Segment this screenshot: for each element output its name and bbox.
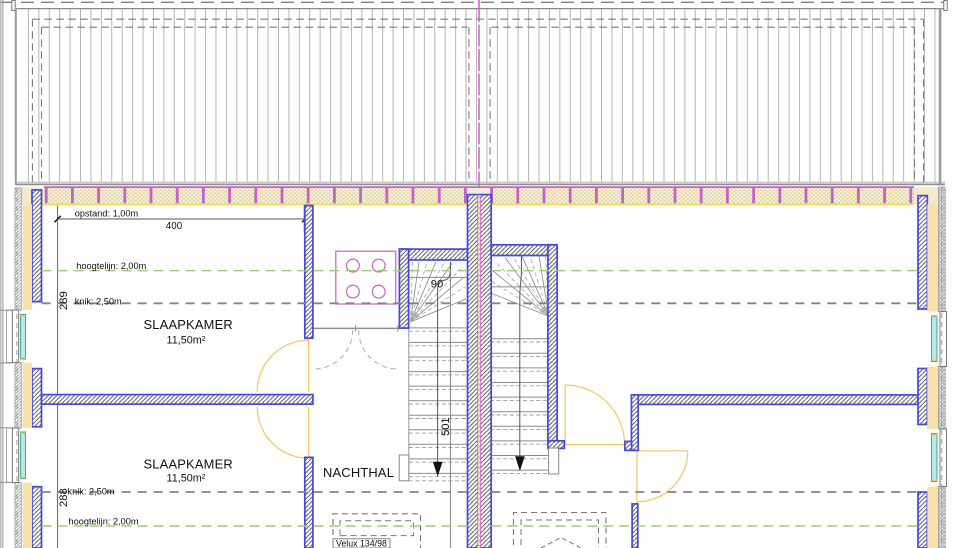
svg-text:hoogtelijn: 2,00m: hoogtelijn: 2,00m [76, 261, 146, 271]
svg-text:NACHTHAL: NACHTHAL [323, 465, 394, 480]
svg-text:288: 288 [58, 488, 70, 507]
svg-text:11,50m²: 11,50m² [167, 473, 206, 485]
svg-text:knik: 2,50m: knik: 2,50m [75, 297, 122, 307]
svg-text:knik: 2,50m: knik: 2,50m [68, 487, 115, 497]
svg-text:501: 501 [440, 417, 452, 436]
svg-text:11,50m²: 11,50m² [167, 335, 206, 347]
svg-text:hoogtelijn: 2,00m: hoogtelijn: 2,00m [69, 517, 139, 527]
svg-text:SLAAPKAMER: SLAAPKAMER [144, 457, 233, 472]
svg-text:opstand: 1,00m: opstand: 1,00m [75, 208, 139, 218]
svg-text:400: 400 [166, 221, 183, 232]
svg-text:SLAAPKAMER: SLAAPKAMER [144, 317, 233, 332]
svg-text:Velux 134/98: Velux 134/98 [336, 539, 387, 548]
svg-text:289: 289 [58, 291, 70, 310]
svg-text:90: 90 [431, 278, 443, 290]
